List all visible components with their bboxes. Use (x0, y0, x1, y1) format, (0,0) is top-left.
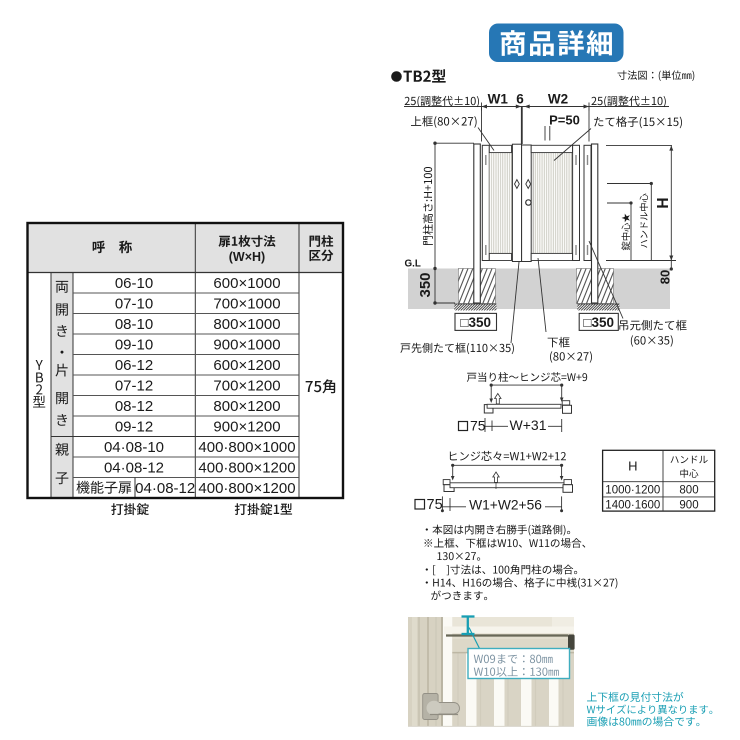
svg-text:900×1000: 900×1000 (213, 337, 280, 354)
svg-text:800×1200: 800×1200 (213, 398, 280, 415)
svg-text:1400·1600: 1400·1600 (605, 500, 660, 512)
svg-text:06-12: 06-12 (115, 357, 153, 374)
svg-text:6: 6 (516, 92, 524, 107)
svg-text:04·08-10: 04·08-10 (104, 439, 164, 456)
svg-text:W+31: W+31 (510, 417, 547, 433)
svg-text:H: H (655, 197, 672, 208)
svg-text:□350: □350 (583, 315, 614, 330)
svg-text:400·800×1200: 400·800×1200 (198, 460, 295, 477)
svg-text:80: 80 (658, 270, 673, 284)
svg-text:W1: W1 (488, 92, 509, 107)
svg-text:900×1200: 900×1200 (213, 419, 280, 436)
svg-text:07-10: 07-10 (115, 296, 153, 313)
svg-text:75: 75 (427, 497, 443, 513)
svg-text:800: 800 (679, 485, 698, 497)
svg-text:700×1200: 700×1200 (213, 378, 280, 395)
svg-text:□350: □350 (460, 315, 491, 330)
svg-text:(W×H): (W×H) (229, 250, 265, 264)
svg-text:W2: W2 (548, 92, 568, 107)
svg-text:P=50: P=50 (549, 113, 580, 128)
svg-text:400·800×1000: 400·800×1000 (198, 439, 295, 456)
svg-text:G.L: G.L (405, 259, 421, 270)
svg-text:08-10: 08-10 (115, 316, 153, 333)
svg-text:08-12: 08-12 (115, 398, 153, 415)
svg-text:600×1000: 600×1000 (213, 275, 280, 292)
svg-text:75: 75 (470, 418, 486, 434)
svg-text:09-10: 09-10 (115, 337, 153, 354)
svg-text:04·08-12: 04·08-12 (135, 480, 195, 497)
svg-text:350: 350 (417, 272, 434, 297)
svg-text:09-12: 09-12 (115, 419, 153, 436)
svg-text:900: 900 (679, 500, 698, 512)
svg-text:600×1200: 600×1200 (213, 357, 280, 374)
svg-text:H: H (628, 459, 637, 474)
svg-text:06-10: 06-10 (115, 275, 153, 292)
svg-text:07-12: 07-12 (115, 378, 153, 395)
svg-text:W1+W2+56: W1+W2+56 (469, 498, 542, 513)
svg-text:1000·1200: 1000·1200 (605, 485, 660, 497)
svg-text:400·800×1200: 400·800×1200 (198, 480, 295, 497)
svg-text:800×1000: 800×1000 (213, 316, 280, 333)
svg-text:700×1000: 700×1000 (213, 296, 280, 313)
svg-text:04·08-12: 04·08-12 (104, 460, 164, 477)
